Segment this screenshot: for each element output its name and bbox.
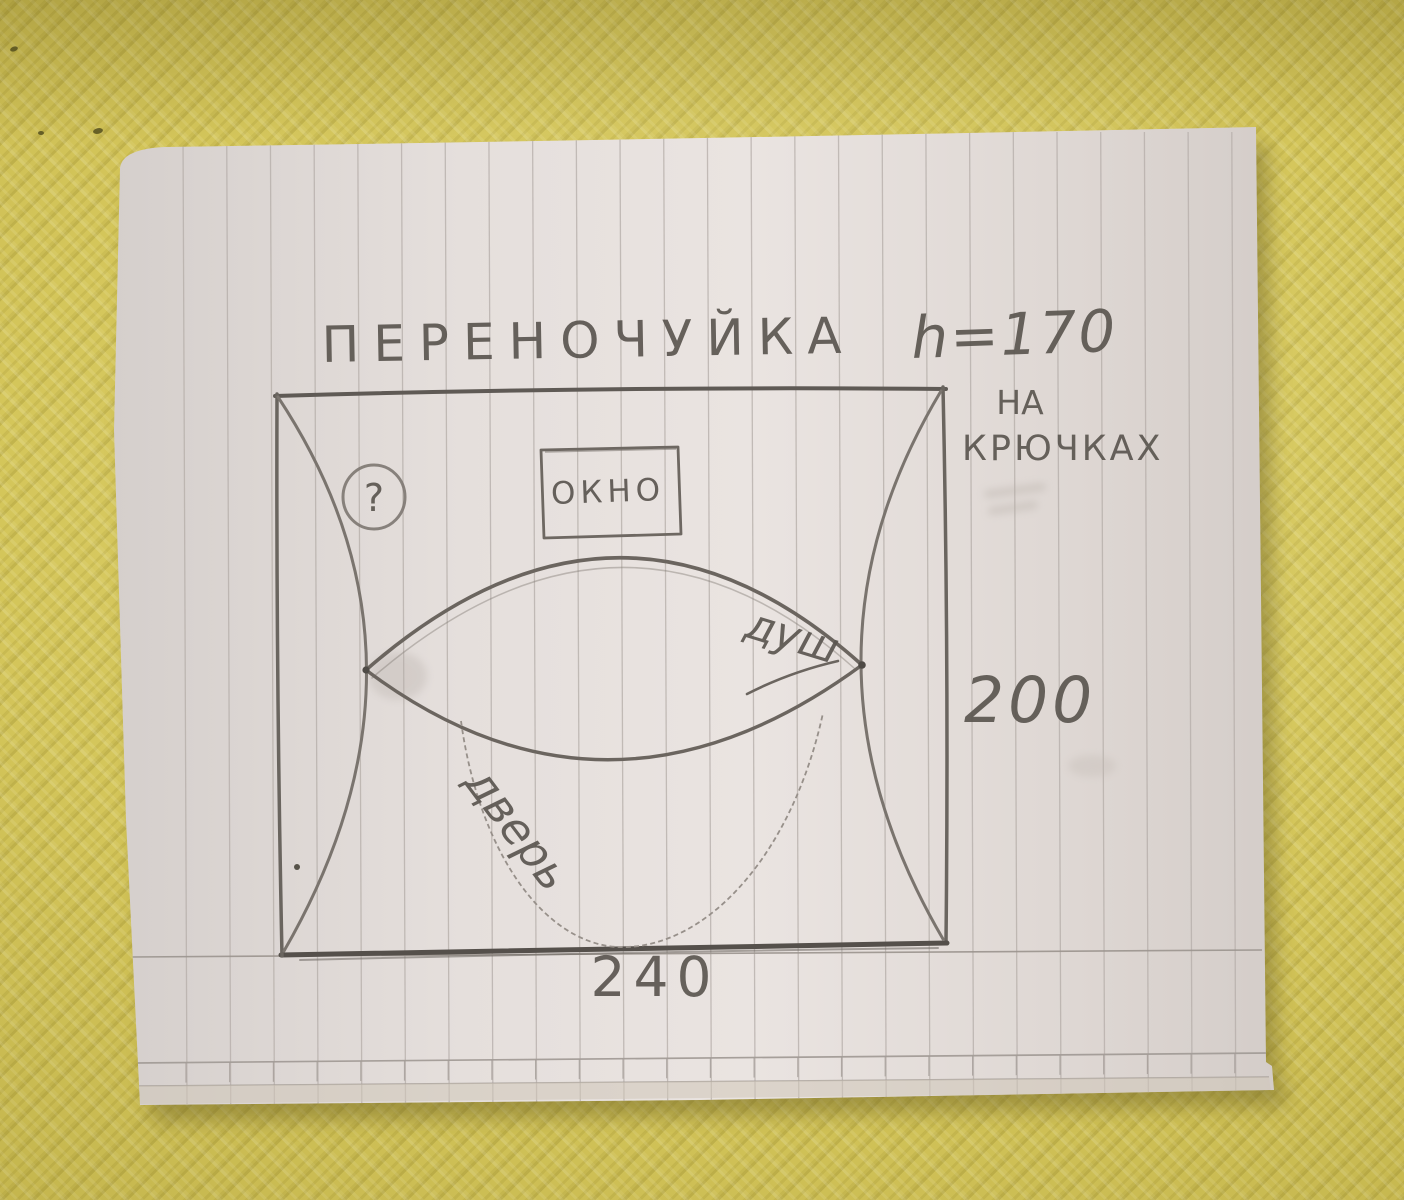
mat-specks (9, 45, 103, 135)
pencil-dot (294, 864, 300, 870)
lens-junction-right (858, 661, 866, 669)
hooks-note-line2: КРЮЧКАХ (962, 429, 1164, 469)
paper-smudge (1068, 755, 1116, 777)
width-dimension: 240 (591, 945, 720, 1009)
sketch-title: ПЕРЕНОЧУЙКА (321, 306, 856, 374)
window-label: ОКНО (550, 472, 665, 512)
hooks-note-line1: НА (996, 383, 1044, 422)
question-mark-label: ? (364, 476, 384, 520)
height-note: h=170 (910, 297, 1118, 372)
photo-canvas: ПЕРЕНОЧУЙКА h=170 НА КРЮЧКАХ ОКНО ? душ … (0, 0, 1404, 1200)
lens-junction-left (362, 666, 369, 673)
height-dimension: 200 (964, 664, 1096, 737)
